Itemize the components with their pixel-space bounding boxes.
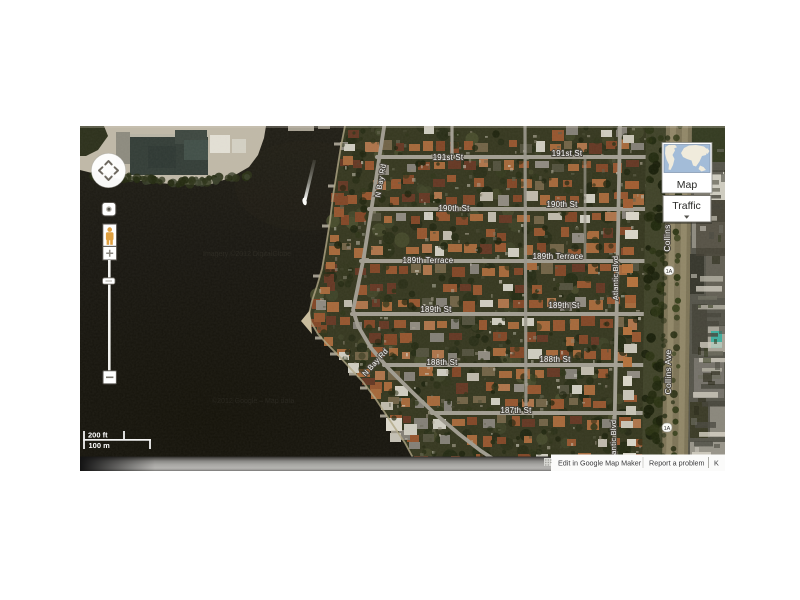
svg-text:100 m: 100 m	[89, 441, 111, 450]
svg-text:Traffic: Traffic	[672, 200, 701, 212]
svg-text:Edit in Google Map Maker: Edit in Google Map Maker	[558, 458, 642, 467]
svg-text:K: K	[714, 458, 719, 467]
svg-text:Report a problem: Report a problem	[649, 458, 705, 467]
svg-text:Map: Map	[677, 179, 698, 191]
svg-text:200 ft: 200 ft	[88, 430, 108, 439]
